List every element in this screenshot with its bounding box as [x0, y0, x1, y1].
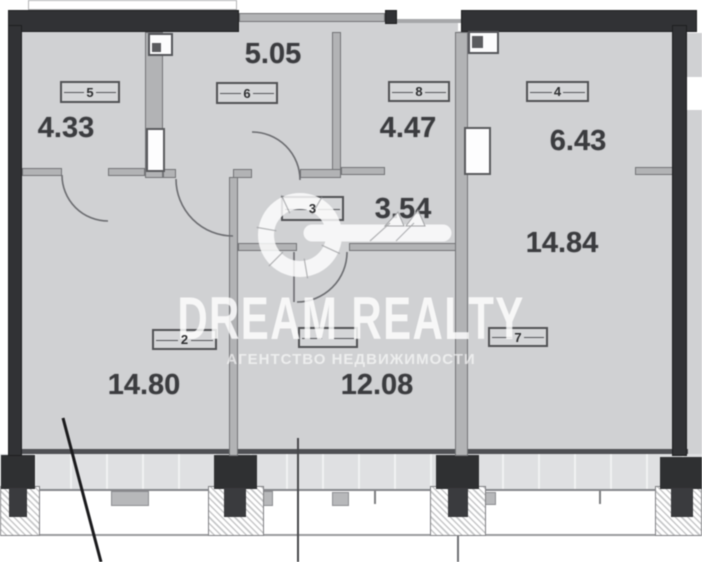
logo-key-tooth	[406, 210, 425, 226]
room-number: 3	[307, 201, 318, 216]
floor-plan: 5 6 8 4 3 2 7 4.33 5.05 4.47 6.43 3.54 1…	[0, 0, 702, 562]
watermark-logo	[0, 0, 702, 562]
room-number: 5	[84, 85, 95, 100]
room-number: 7	[512, 330, 523, 345]
logo-key-tooth	[385, 212, 404, 226]
room-number: 2	[179, 332, 190, 347]
room-number: 8	[413, 84, 424, 99]
watermark-subtitle: АГЕНТСТВО НЕДВИЖИМОСТИ	[0, 351, 702, 368]
room-number: 6	[241, 86, 252, 101]
room-number: 4	[552, 84, 563, 99]
